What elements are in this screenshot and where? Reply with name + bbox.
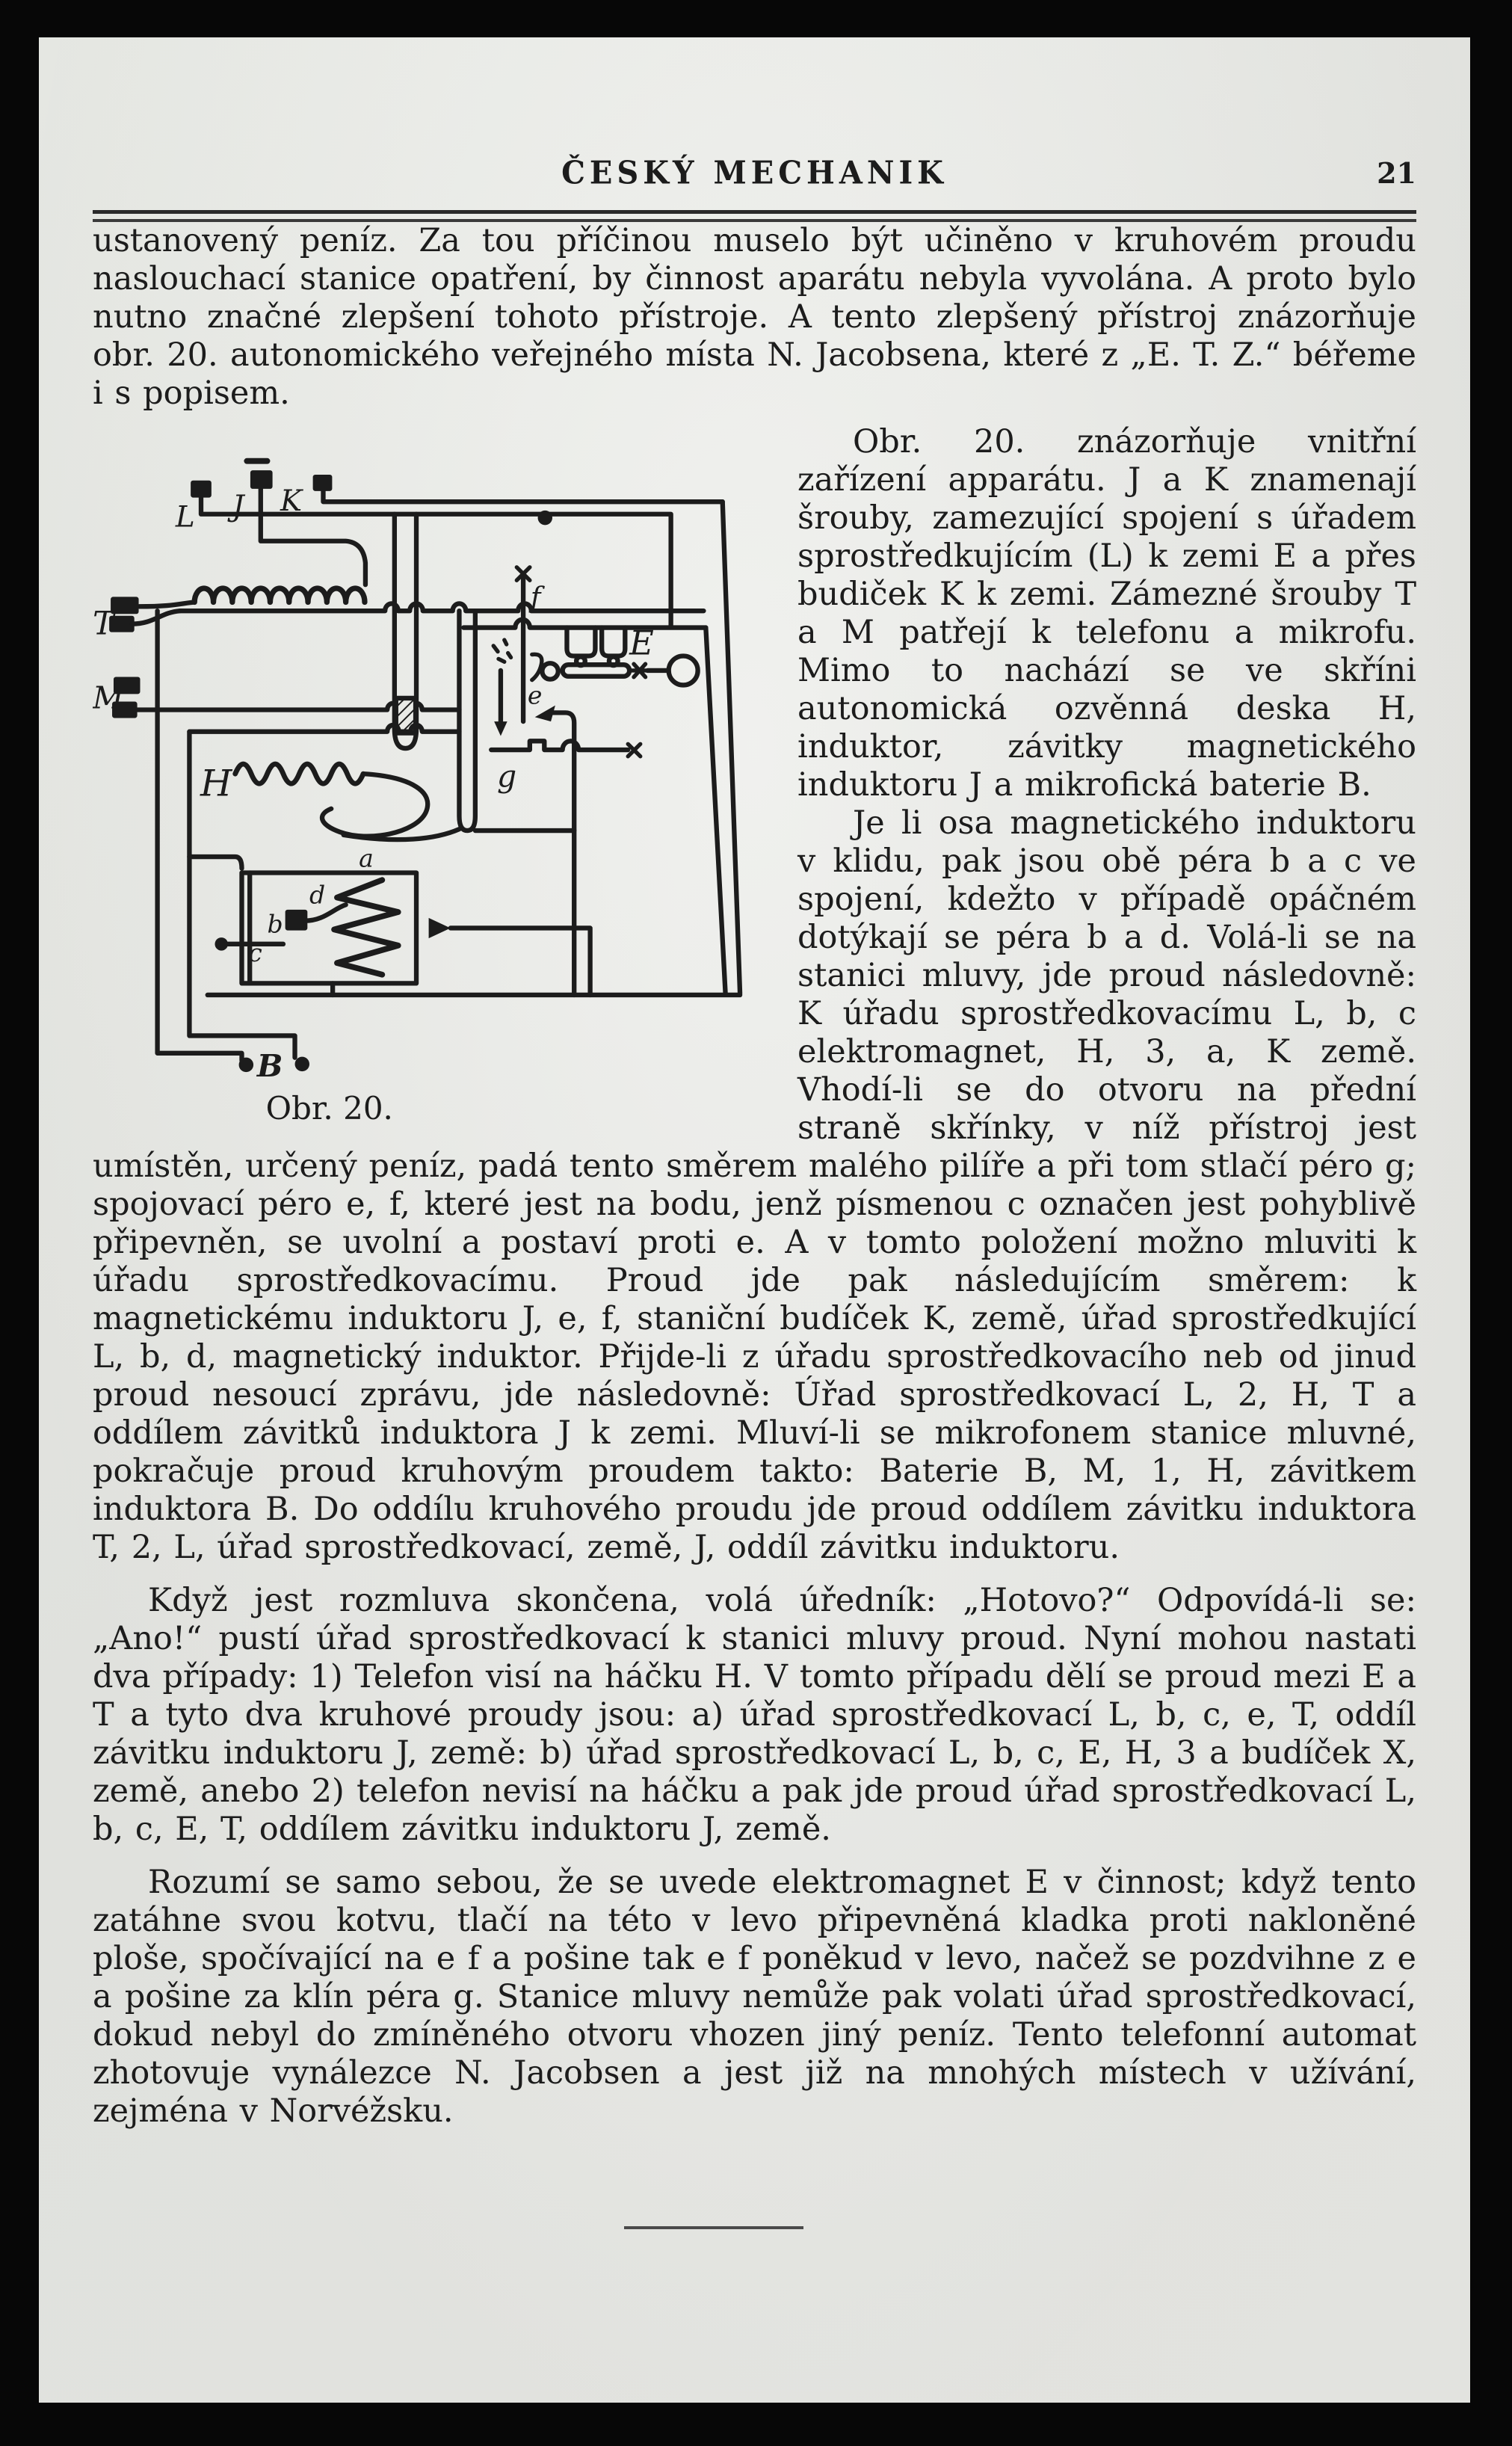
header-rule	[93, 210, 1416, 222]
contact-b	[288, 912, 305, 928]
wire	[189, 857, 241, 869]
wire	[323, 489, 722, 502]
wire	[189, 725, 459, 732]
wire	[551, 712, 574, 995]
paragraph-call-end: Když jest rozmluva skončena, volá úřední…	[93, 1582, 1416, 1849]
circuit-diagram: L J K T M H E f e g a d b c B	[93, 423, 769, 1078]
lever-bar	[563, 665, 630, 677]
figure-label-e: e	[528, 681, 543, 710]
wire	[180, 603, 704, 611]
pulley-circle	[669, 656, 698, 685]
induction-coil	[194, 588, 365, 602]
terminal-B1	[239, 1058, 253, 1072]
arrow-head	[494, 721, 507, 736]
hook-spring	[235, 764, 363, 783]
page-number: 21	[1289, 156, 1416, 190]
figure-label-g: g	[497, 759, 516, 795]
section-end-rule	[624, 2226, 803, 2229]
figure-label-T: T	[93, 605, 117, 642]
wire-right-frame	[723, 502, 740, 994]
journal-title: ČESKÝ MECHANIK	[220, 155, 1289, 191]
wire	[139, 602, 194, 606]
figure-label-d: d	[309, 880, 325, 909]
figure-label-J: J	[227, 490, 246, 524]
dashed-marks	[493, 640, 510, 662]
figure-obr-20: L J K T M H E f e g a d b c B Obr. 20.	[93, 423, 769, 1127]
chute	[459, 611, 475, 831]
figure-label-B: B	[256, 1048, 283, 1078]
figure-label-b: b	[268, 909, 283, 938]
contact-arrow	[429, 918, 451, 938]
wire-g	[491, 741, 628, 750]
wire-right-frame-inner	[706, 628, 725, 994]
terminal-B2	[295, 1057, 309, 1071]
scanned-page: ČESKÝ MECHANIK 21 ustanovený peníz. Za t…	[39, 37, 1470, 2403]
electromagnet-coil	[567, 628, 595, 656]
figure-caption: Obr. 20.	[93, 1090, 567, 1127]
lever-hook	[532, 654, 542, 680]
figure-label-K: K	[280, 484, 303, 518]
paragraph-intro: ustanovený peníz. Za tou příčinou muselo…	[93, 222, 1416, 413]
figure-label-M: M	[93, 680, 125, 716]
figure-label-E: E	[629, 623, 654, 663]
wire	[451, 928, 590, 995]
star-mark	[632, 664, 647, 677]
figure-label-f: f	[528, 581, 546, 613]
page-header: ČESKÝ MECHANIK 21	[93, 155, 1416, 191]
terminal-T1	[113, 600, 136, 612]
figure-label-L: L	[175, 500, 195, 534]
figure-label-c: c	[248, 938, 262, 967]
zigzag-spring	[334, 880, 398, 975]
electromagnet-coil	[602, 628, 625, 656]
terminal-T2	[111, 618, 132, 630]
figure-label-a: a	[359, 844, 374, 873]
hook-loop	[322, 774, 428, 837]
figure-label-H: H	[200, 763, 233, 804]
paragraph-conclusion: Rozumí se samo sebou, že se uvede elektr…	[93, 1864, 1416, 2131]
wire	[201, 495, 671, 626]
lever-pivot	[542, 663, 558, 679]
